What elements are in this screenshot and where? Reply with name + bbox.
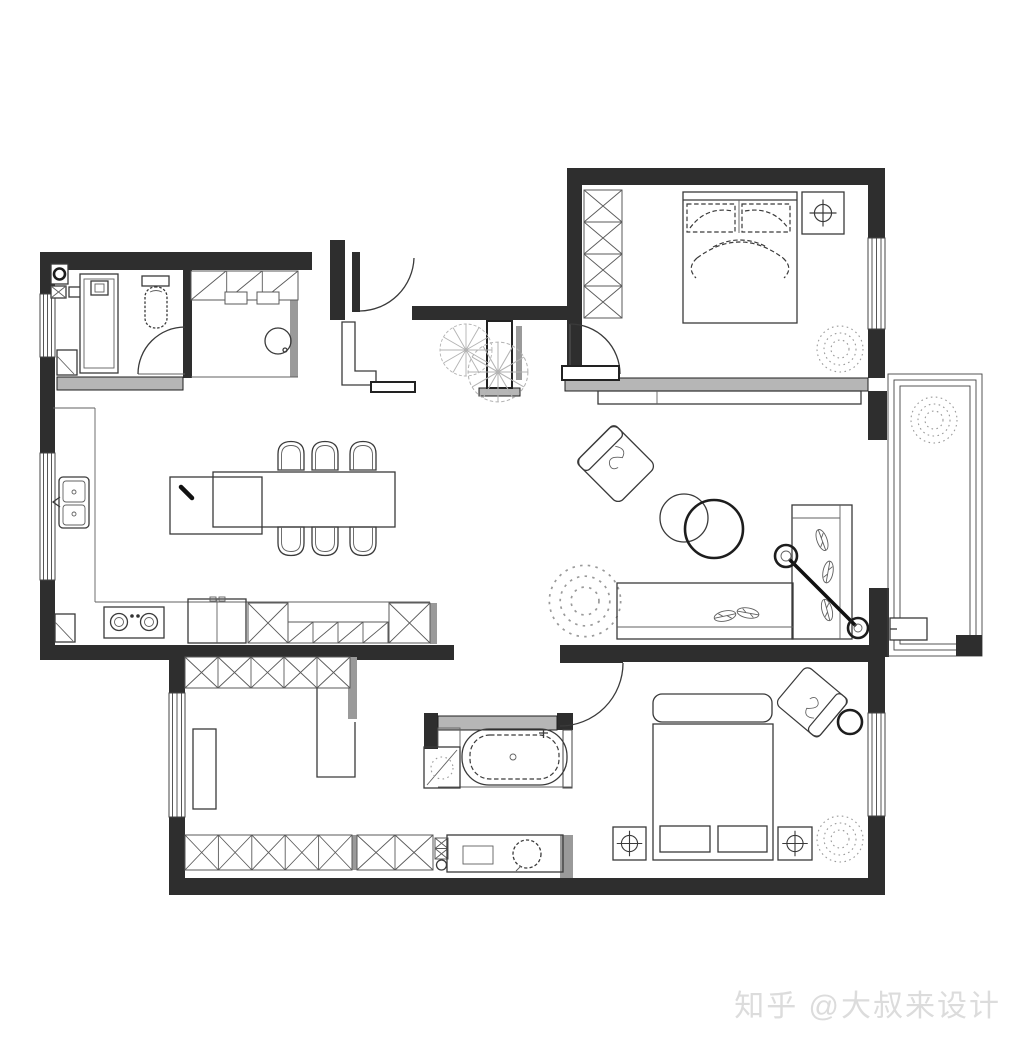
- window-study-left: [169, 693, 185, 817]
- fan-plant-2: [468, 342, 528, 402]
- study-desk: [193, 729, 216, 809]
- study-cloakroom: [185, 657, 448, 870]
- shoe-cabinet: [342, 322, 376, 385]
- bed2: [653, 694, 773, 860]
- master-bed: [683, 192, 797, 323]
- living-armchair: [576, 424, 657, 505]
- hatched-cabinets: [191, 271, 298, 304]
- l-shaped-sofa: [617, 505, 852, 639]
- wardrobe-bottom: [185, 835, 448, 870]
- nightstand-left: [613, 827, 646, 860]
- bathtub: [462, 729, 567, 785]
- fridge: [188, 597, 246, 643]
- bedroom2-armchair: [775, 665, 849, 739]
- ac-unit: [890, 618, 927, 640]
- dining-table: [213, 472, 395, 527]
- bedroom2-plant: [817, 816, 863, 862]
- living-room: [549, 424, 868, 639]
- entry-door: [352, 252, 414, 312]
- island-counter: [170, 477, 262, 534]
- vanity: [447, 835, 563, 872]
- balcony: [888, 374, 982, 656]
- toilet: [142, 276, 169, 328]
- fan-plant-1: [440, 324, 492, 376]
- floor-plan-drawing: 知乎 @大叔来设计: [0, 0, 1027, 1051]
- cooktop: [104, 607, 164, 638]
- counter-edge: [53, 408, 430, 602]
- master-bedroom: [562, 190, 863, 404]
- second-bedroom: [613, 665, 863, 862]
- master-nightstand: [802, 192, 844, 234]
- kitchen-cabinets: [248, 603, 430, 643]
- master-wardrobe: [584, 190, 622, 318]
- closet-top-left: [191, 271, 298, 377]
- round-wash-basin: [265, 328, 291, 354]
- nightstand-right: [778, 827, 812, 860]
- bathroom-top-door: [138, 327, 185, 374]
- entry-bench: [371, 382, 415, 392]
- balcony-corner-post: [956, 635, 982, 656]
- round-table-large: [685, 500, 743, 558]
- living-plant: [549, 565, 620, 636]
- master-plant: [817, 326, 863, 372]
- floor-plan-page: 知乎 @大叔来设计: [0, 0, 1027, 1051]
- balcony-plant: [911, 397, 957, 443]
- kitchen-fold-door: [55, 614, 75, 642]
- outer-and-inner-walls: [40, 168, 889, 895]
- fold-door: [57, 350, 77, 375]
- wardrobe-top: [185, 657, 350, 688]
- round-table-small: [660, 494, 708, 542]
- shower-corner: [424, 747, 460, 788]
- shower-cabin: [80, 274, 118, 373]
- window-left-top: [40, 294, 55, 357]
- window-bedroom2-right: [868, 713, 885, 816]
- kitchen-dining: [53, 408, 430, 643]
- bathroom-top-left: [51, 264, 169, 375]
- dining-chairs: [278, 442, 376, 556]
- round-side-table: [838, 710, 862, 734]
- niche: [438, 728, 460, 747]
- double-sink: [53, 477, 89, 528]
- window-left-kitchen: [40, 453, 55, 580]
- watermark-text: 知乎 @大叔来设计: [734, 990, 1001, 1023]
- arc-floor-lamp: [775, 545, 868, 638]
- window-master-right: [868, 238, 885, 329]
